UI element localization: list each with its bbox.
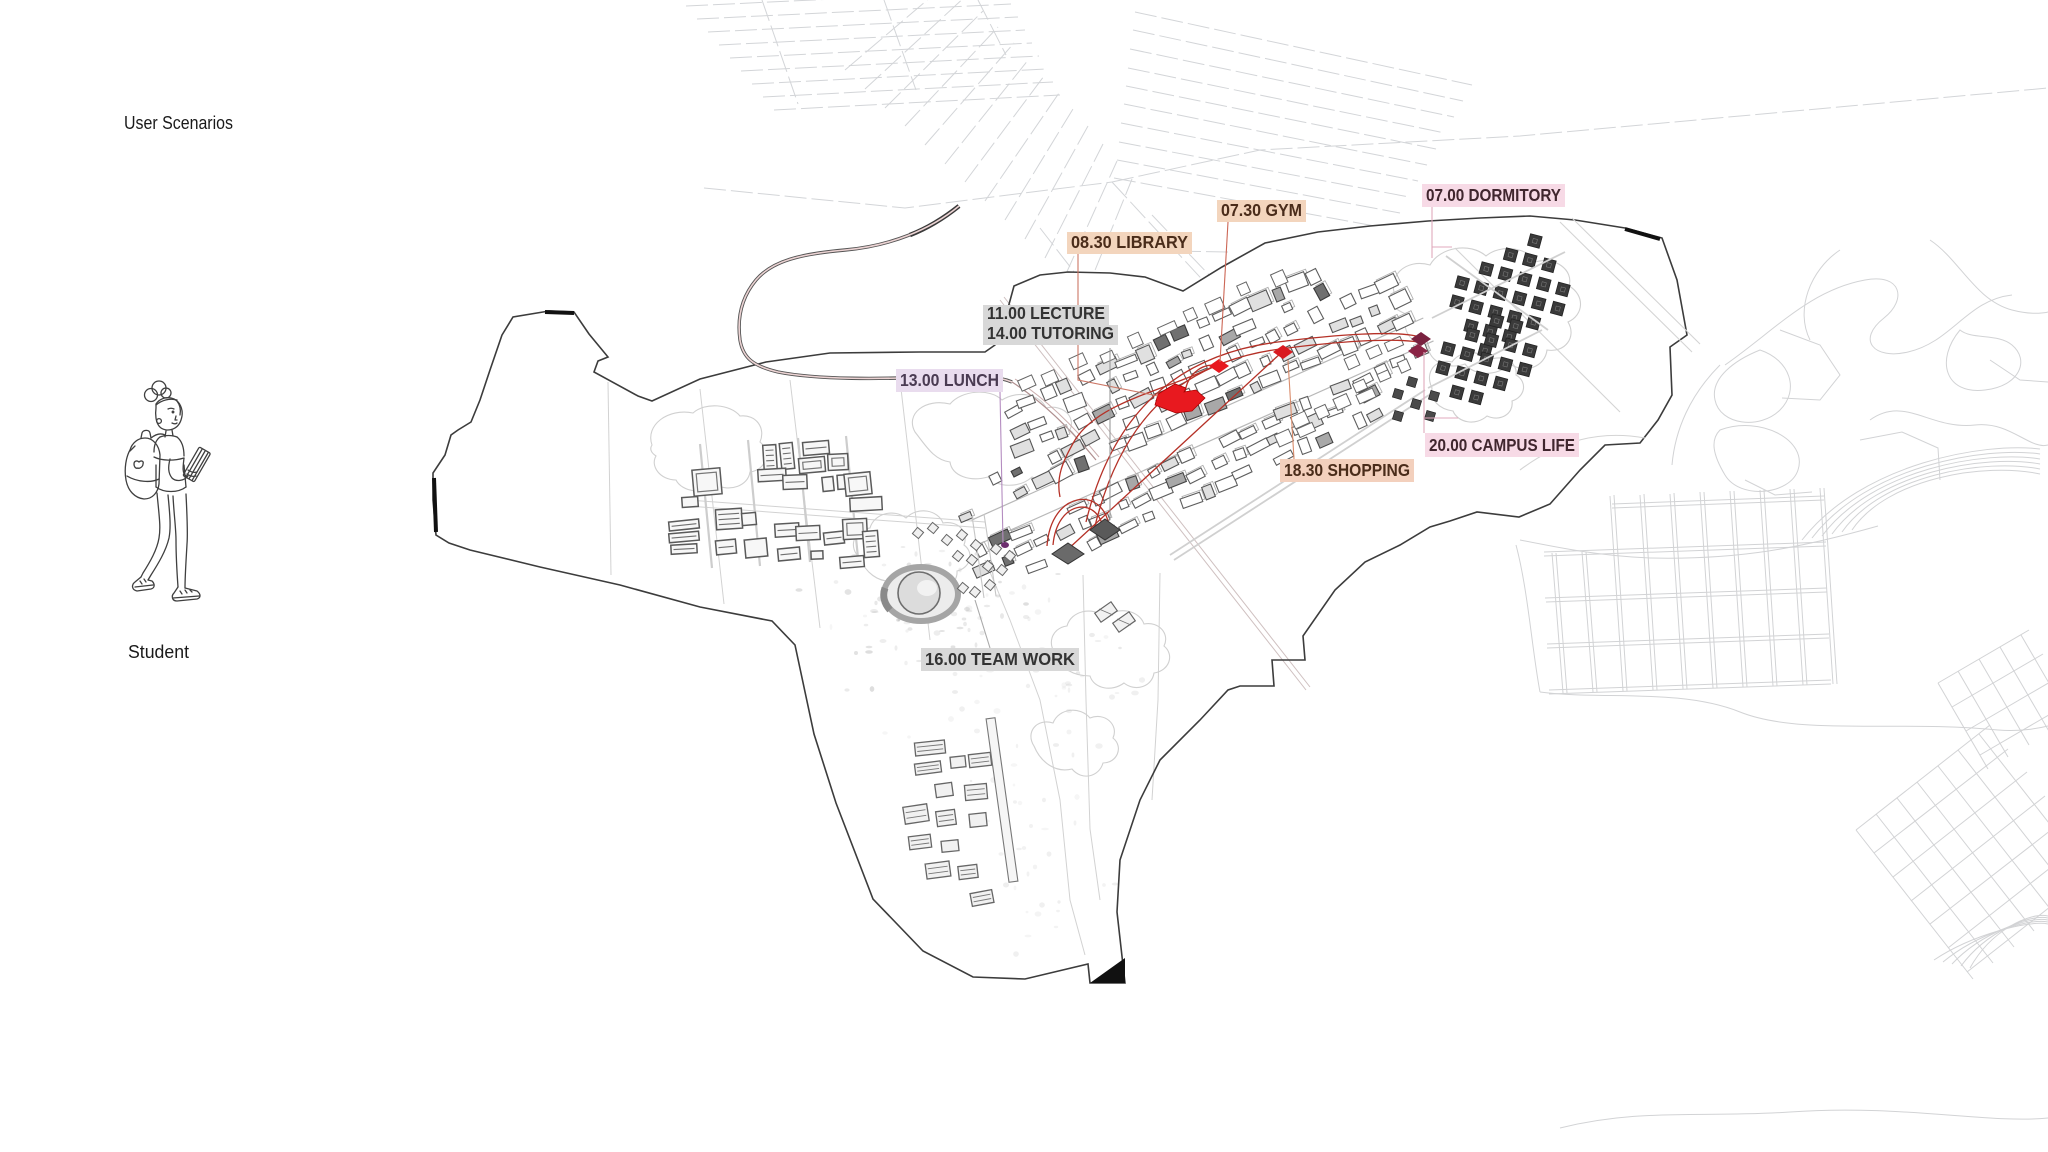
svg-text:08.30 LIBRARY: 08.30 LIBRARY: [1071, 232, 1188, 252]
svg-text:Student: Student: [128, 642, 189, 662]
svg-text:13.00 LUNCH: 13.00 LUNCH: [900, 370, 999, 390]
svg-text:16.00 TEAM WORK: 16.00 TEAM WORK: [925, 649, 1075, 669]
svg-text:20.00 CAMPUS LIFE: 20.00 CAMPUS LIFE: [1429, 435, 1575, 455]
svg-text:07.30 GYM: 07.30 GYM: [1221, 200, 1302, 220]
svg-text:14.00 TUTORING: 14.00 TUTORING: [987, 323, 1114, 343]
svg-text:11.00 LECTURE: 11.00 LECTURE: [987, 303, 1105, 323]
svg-text:18.30 SHOPPING: 18.30 SHOPPING: [1284, 460, 1410, 480]
svg-text:User Scenarios: User Scenarios: [124, 113, 233, 133]
svg-text:07.00 DORMITORY: 07.00 DORMITORY: [1426, 185, 1561, 205]
